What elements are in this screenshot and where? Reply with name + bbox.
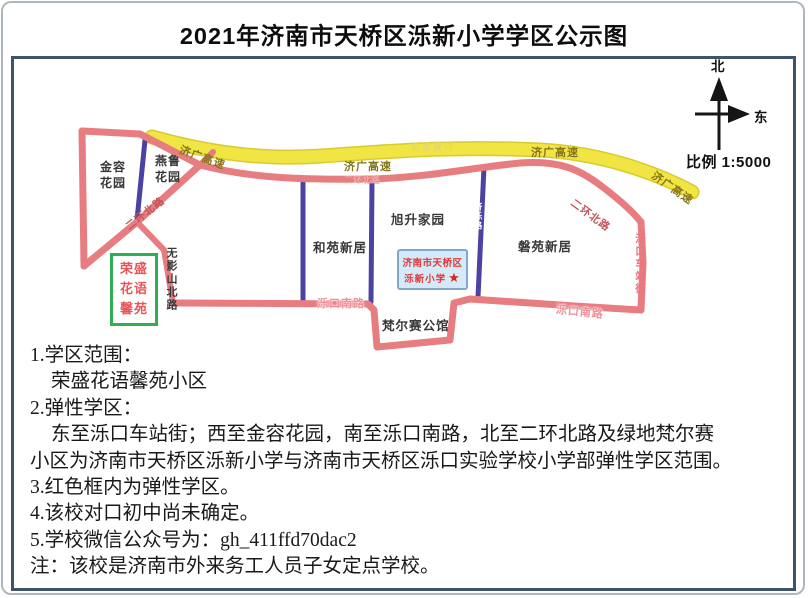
district-green-box: 荣盛 花语 馨苑 xyxy=(110,253,158,326)
school-district-poster: { "title": "2021年济南市天桥区泺新小学学区公示图", "comp… xyxy=(0,0,808,598)
area-label-xusheng: 旭升家园 xyxy=(391,209,445,228)
school-name-line: 泺新小学★ xyxy=(404,271,461,285)
east-arrow-icon xyxy=(728,105,750,123)
note-line-1: 1.学区范围： xyxy=(30,343,780,369)
school-district-line: 济南市天桥区 xyxy=(402,255,462,269)
road-label-luokou-station: 泺口车站街 xyxy=(633,233,648,296)
note-line-6: 3.红色框内为弹性学区。 xyxy=(30,475,780,501)
area-label-fanersai: 梵尔赛公馆 xyxy=(382,315,450,334)
river-label: 百里黄河 xyxy=(411,140,455,153)
green-box-line: 花语 xyxy=(113,279,155,299)
road-label-jiluo: 济泺路 xyxy=(472,202,484,231)
school-label-box: 济南市天桥区 泺新小学★ xyxy=(397,249,468,290)
map-scale-label: 比例 1:5000 xyxy=(686,151,771,172)
road-triangle-left xyxy=(82,131,84,266)
school-name: 泺新小学 xyxy=(404,271,446,285)
note-line-2: 荣盛花语馨苑小区 xyxy=(30,369,780,395)
area-label-jinrong-garden: 金容 花园 xyxy=(96,159,130,191)
note-line-3: 2.弹性学区： xyxy=(30,396,780,422)
note-line-8: 5.学校微信公众号为：gh_411ffd70dac2 xyxy=(30,528,780,554)
road-jiluo xyxy=(478,167,484,297)
road-label-erhuan-mid: 二环北路 xyxy=(344,173,380,186)
expressway-label-east: 济广高速 xyxy=(531,144,579,160)
area-label-line: 花园 xyxy=(151,169,185,185)
road-label-wuyingshan: 无影山北路 xyxy=(163,247,179,312)
area-label-yanlu-garden: 燕鲁 花园 xyxy=(151,153,185,185)
notes-section: 1.学区范围： 荣盛花语馨苑小区 2.弹性学区： 东至泺口车站街；西至金容花园，… xyxy=(30,343,780,581)
north-arrow-icon xyxy=(710,77,728,101)
area-label-line: 花园 xyxy=(96,175,130,191)
compass-east-label: 东 xyxy=(754,106,768,126)
school-star-icon: ★ xyxy=(448,271,461,284)
note-line-4: 东至泺口车站街；西至金容花园，南至泺口南路，北至二环北路及绿地梵尔赛 xyxy=(30,422,780,448)
compass xyxy=(695,77,750,150)
note-line-5: 小区为济南市天桥区泺新小学与济南市天桥区泺口实验学校小学部弹性学区范围。 xyxy=(30,449,780,475)
road-heyuan-east xyxy=(371,180,372,302)
road-label-luokou-south-west: 泺口南路 xyxy=(317,295,365,311)
area-label-line: 金容 xyxy=(96,159,130,175)
note-line-9: 注：该校是济南市外来务工人员子女定点学校。 xyxy=(30,554,780,580)
compass-north-label: 北 xyxy=(711,55,725,75)
area-label-heyuan: 和苑新居 xyxy=(313,237,367,256)
green-box-line: 荣盛 xyxy=(113,259,155,279)
expressway-label-mid: 济广高速 xyxy=(344,158,392,174)
area-label-panyuan: 磐苑新居 xyxy=(518,236,572,255)
green-box-line: 馨苑 xyxy=(113,299,155,319)
page-title: 2021年济南市天桥区泺新小学学区公示图 xyxy=(0,17,808,51)
area-label-line: 燕鲁 xyxy=(151,153,185,169)
note-line-7: 4.该校对口初中尚未确定。 xyxy=(30,501,780,527)
